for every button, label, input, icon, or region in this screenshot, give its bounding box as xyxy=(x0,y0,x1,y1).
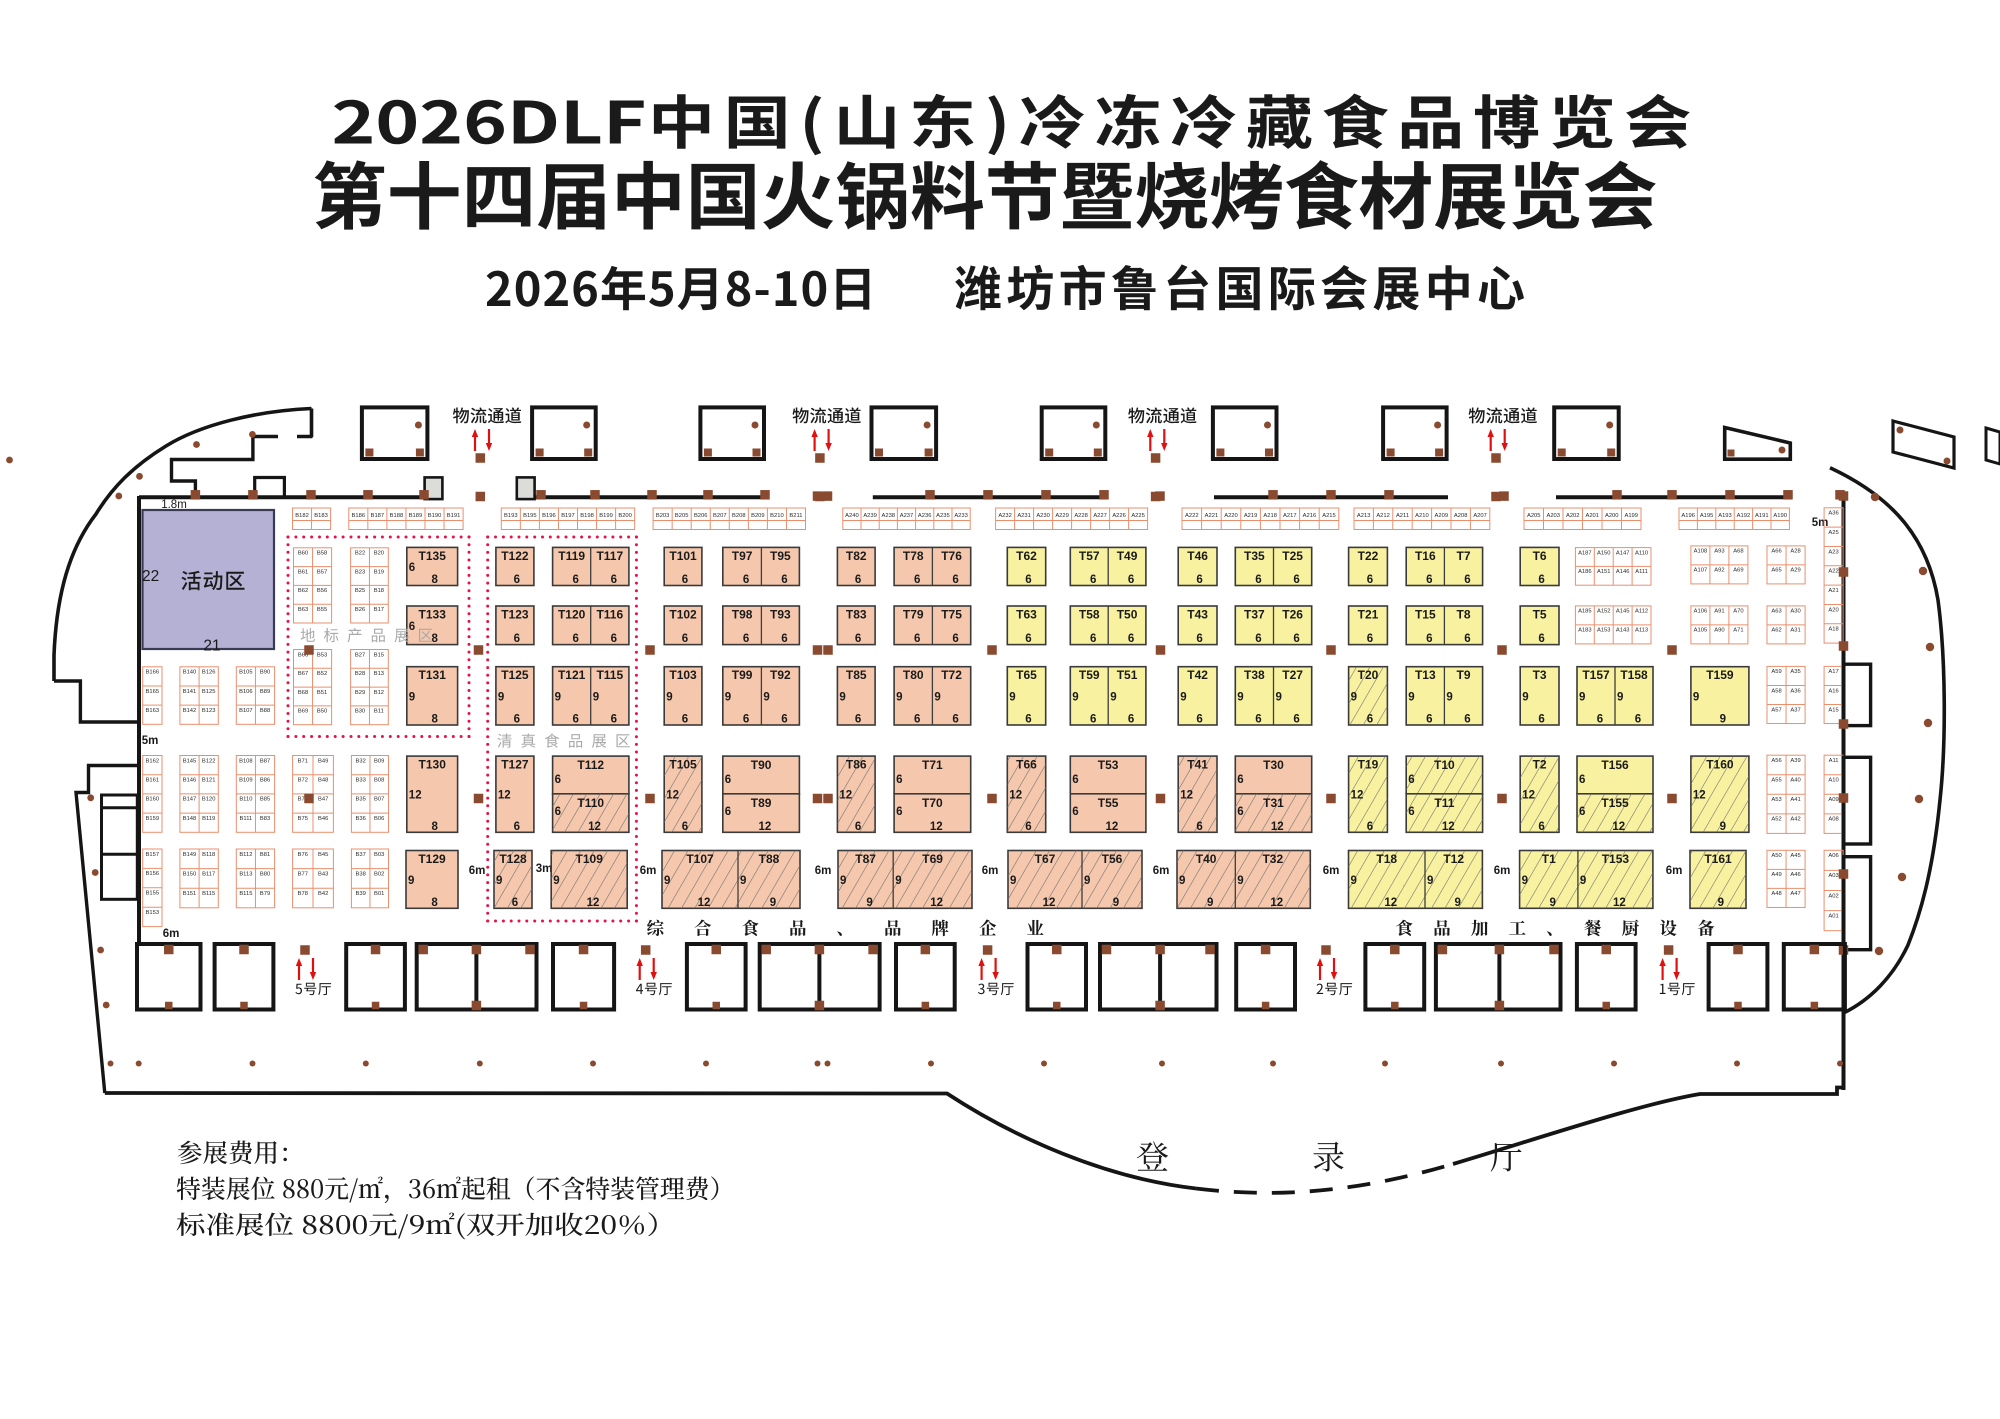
svg-text:A70: A70 xyxy=(1733,609,1743,615)
svg-text:B01: B01 xyxy=(374,891,384,897)
svg-text:6m: 6m xyxy=(1494,865,1511,877)
svg-text:A145: A145 xyxy=(1616,609,1630,615)
svg-text:6: 6 xyxy=(855,714,861,726)
svg-text:A199: A199 xyxy=(1624,513,1638,519)
svg-text:9: 9 xyxy=(740,875,746,887)
svg-text:T10: T10 xyxy=(1434,758,1455,772)
svg-text:T153: T153 xyxy=(1602,852,1630,866)
svg-text:T99: T99 xyxy=(732,668,753,682)
svg-text:B77: B77 xyxy=(298,871,308,877)
svg-text:6: 6 xyxy=(725,774,731,786)
svg-text:A201: A201 xyxy=(1585,513,1599,519)
svg-text:A227: A227 xyxy=(1093,513,1107,519)
svg-text:6: 6 xyxy=(1072,806,1078,818)
svg-text:B35: B35 xyxy=(356,797,366,803)
svg-text:A25: A25 xyxy=(1828,530,1838,536)
svg-text:A233: A233 xyxy=(954,513,968,519)
svg-text:A02: A02 xyxy=(1828,893,1838,899)
svg-text:B03: B03 xyxy=(374,852,384,858)
svg-text:B149: B149 xyxy=(183,852,197,858)
svg-text:6: 6 xyxy=(896,774,902,786)
svg-text:B153: B153 xyxy=(146,910,160,916)
svg-text:12: 12 xyxy=(1613,897,1626,909)
svg-text:9: 9 xyxy=(408,875,414,887)
svg-text:T97: T97 xyxy=(732,549,753,563)
svg-text:B211: B211 xyxy=(789,513,802,519)
svg-text:B07: B07 xyxy=(374,797,384,803)
svg-text:9: 9 xyxy=(1237,691,1243,703)
svg-text:A65: A65 xyxy=(1771,568,1781,574)
svg-text:A232: A232 xyxy=(998,513,1012,519)
svg-text:A59: A59 xyxy=(1771,669,1781,675)
svg-text:T135: T135 xyxy=(419,549,447,563)
svg-text:A93: A93 xyxy=(1714,549,1724,555)
svg-text:B76: B76 xyxy=(298,852,308,858)
svg-text:A205: A205 xyxy=(1527,513,1541,519)
svg-text:9: 9 xyxy=(895,875,901,887)
svg-text:T76: T76 xyxy=(941,549,962,563)
svg-text:6m: 6m xyxy=(815,865,832,877)
svg-text:T37: T37 xyxy=(1244,608,1265,622)
svg-text:T161: T161 xyxy=(1704,852,1732,866)
svg-text:A210: A210 xyxy=(1415,513,1429,519)
svg-text:12: 12 xyxy=(1043,897,1056,909)
svg-text:B20: B20 xyxy=(374,551,384,557)
svg-text:T127: T127 xyxy=(501,758,529,772)
svg-text:B42: B42 xyxy=(318,891,328,897)
svg-text:B189: B189 xyxy=(409,513,423,519)
svg-text:B166: B166 xyxy=(146,670,160,676)
svg-text:A228: A228 xyxy=(1074,513,1088,519)
svg-text:A146: A146 xyxy=(1616,569,1630,575)
svg-text:3m: 3m xyxy=(536,863,553,875)
svg-text:T87: T87 xyxy=(855,852,876,866)
svg-text:A46: A46 xyxy=(1790,872,1800,878)
svg-text:B118: B118 xyxy=(202,852,215,858)
svg-text:T110: T110 xyxy=(577,796,604,810)
svg-text:T40: T40 xyxy=(1196,852,1217,866)
svg-text:6: 6 xyxy=(1597,714,1603,726)
svg-text:A187: A187 xyxy=(1578,550,1592,556)
svg-text:8: 8 xyxy=(432,821,439,833)
svg-text:9: 9 xyxy=(666,691,672,703)
svg-text:T26: T26 xyxy=(1282,608,1303,622)
svg-text:B39: B39 xyxy=(356,891,366,897)
svg-text:B111: B111 xyxy=(240,816,253,822)
svg-text:B196: B196 xyxy=(542,513,556,519)
svg-text:A57: A57 xyxy=(1771,707,1781,713)
svg-text:6: 6 xyxy=(1293,714,1299,726)
svg-text:A35: A35 xyxy=(1790,669,1800,675)
svg-text:6: 6 xyxy=(1128,574,1134,586)
svg-text:6: 6 xyxy=(409,621,415,633)
svg-text:T35: T35 xyxy=(1244,549,1265,563)
svg-text:6: 6 xyxy=(1090,633,1096,645)
svg-text:B30: B30 xyxy=(355,709,365,715)
svg-text:9: 9 xyxy=(763,691,769,703)
svg-text:B62: B62 xyxy=(298,588,308,594)
svg-text:T15: T15 xyxy=(1415,608,1436,622)
svg-text:B109: B109 xyxy=(239,778,253,784)
svg-text:A240: A240 xyxy=(845,513,859,519)
svg-text:T95: T95 xyxy=(770,549,791,563)
svg-text:B08: B08 xyxy=(374,778,384,784)
svg-text:T156: T156 xyxy=(1601,758,1629,772)
svg-text:6: 6 xyxy=(409,562,415,574)
svg-text:B140: B140 xyxy=(183,670,197,676)
svg-text:T30: T30 xyxy=(1263,758,1284,772)
svg-text:T79: T79 xyxy=(903,608,924,622)
svg-text:6: 6 xyxy=(952,574,958,586)
svg-text:9: 9 xyxy=(1427,875,1433,887)
svg-text:A220: A220 xyxy=(1224,513,1238,519)
svg-text:B142: B142 xyxy=(183,708,197,714)
svg-text:6: 6 xyxy=(1426,633,1432,645)
svg-text:9: 9 xyxy=(1580,875,1586,887)
svg-text:T105: T105 xyxy=(669,758,697,772)
svg-text:B25: B25 xyxy=(355,588,365,594)
svg-text:A239: A239 xyxy=(863,513,877,519)
svg-text:6: 6 xyxy=(1408,774,1414,786)
svg-text:B186: B186 xyxy=(352,513,366,519)
svg-text:9: 9 xyxy=(839,691,845,703)
svg-text:6m: 6m xyxy=(1153,865,1170,877)
svg-text:6: 6 xyxy=(1128,633,1134,645)
svg-text:B193: B193 xyxy=(504,513,518,519)
svg-text:B75: B75 xyxy=(298,816,308,822)
svg-text:6: 6 xyxy=(1090,714,1096,726)
svg-text:6: 6 xyxy=(1196,714,1202,726)
svg-text:B117: B117 xyxy=(202,871,215,877)
svg-text:A20: A20 xyxy=(1828,607,1838,613)
svg-text:T27: T27 xyxy=(1282,668,1303,682)
svg-text:12: 12 xyxy=(1271,821,1284,833)
svg-text:B63: B63 xyxy=(298,607,308,613)
svg-text:8: 8 xyxy=(432,574,439,586)
svg-text:6: 6 xyxy=(1538,821,1544,833)
svg-text:B11: B11 xyxy=(374,709,384,715)
svg-text:B15: B15 xyxy=(374,652,384,658)
svg-text:T22: T22 xyxy=(1358,549,1379,563)
svg-text:T65: T65 xyxy=(1016,668,1037,682)
svg-text:B107: B107 xyxy=(239,708,253,714)
svg-text:9: 9 xyxy=(1084,875,1090,887)
svg-text:B53: B53 xyxy=(317,652,327,658)
svg-text:B78: B78 xyxy=(298,891,308,897)
svg-text:9: 9 xyxy=(1718,897,1724,909)
svg-text:12: 12 xyxy=(1009,790,1022,802)
svg-text:B23: B23 xyxy=(355,569,365,575)
svg-text:9: 9 xyxy=(1408,691,1414,703)
svg-text:T12: T12 xyxy=(1443,852,1464,866)
svg-text:T20: T20 xyxy=(1358,668,1379,682)
svg-text:1.8m: 1.8m xyxy=(161,499,187,511)
svg-text:6: 6 xyxy=(914,714,920,726)
svg-text:B68: B68 xyxy=(298,690,308,696)
svg-text:B06: B06 xyxy=(374,816,384,822)
svg-text:9: 9 xyxy=(593,691,599,703)
svg-text:B147: B147 xyxy=(183,797,197,803)
svg-text:B113: B113 xyxy=(239,871,252,877)
svg-text:A221: A221 xyxy=(1205,513,1219,519)
svg-text:B119: B119 xyxy=(202,816,215,822)
svg-text:6: 6 xyxy=(514,714,520,726)
svg-text:B157: B157 xyxy=(146,852,160,858)
svg-text:A235: A235 xyxy=(936,513,950,519)
svg-text:A71: A71 xyxy=(1733,628,1743,634)
svg-text:T1: T1 xyxy=(1542,852,1556,866)
svg-text:6: 6 xyxy=(572,633,578,645)
svg-text:9: 9 xyxy=(498,691,504,703)
svg-text:6: 6 xyxy=(781,574,787,586)
svg-text:12: 12 xyxy=(1351,790,1364,802)
svg-text:T31: T31 xyxy=(1263,796,1284,810)
svg-text:B36: B36 xyxy=(356,816,366,822)
svg-text:A69: A69 xyxy=(1733,568,1743,574)
svg-text:9: 9 xyxy=(1720,714,1726,726)
svg-text:T69: T69 xyxy=(922,852,943,866)
svg-text:A56: A56 xyxy=(1771,758,1781,764)
svg-text:B50: B50 xyxy=(317,709,327,715)
svg-text:T129: T129 xyxy=(418,852,446,866)
svg-text:A190: A190 xyxy=(1773,513,1787,519)
svg-text:A113: A113 xyxy=(1635,628,1648,634)
svg-text:9: 9 xyxy=(1617,691,1623,703)
svg-text:B52: B52 xyxy=(317,671,327,677)
svg-text:B165: B165 xyxy=(146,689,160,695)
svg-text:9: 9 xyxy=(409,691,415,703)
svg-text:T41: T41 xyxy=(1187,758,1208,772)
svg-text:T78: T78 xyxy=(903,549,924,563)
svg-text:T3: T3 xyxy=(1533,668,1547,682)
svg-text:A18: A18 xyxy=(1828,627,1838,633)
svg-text:6: 6 xyxy=(1090,574,1096,586)
svg-text:T121: T121 xyxy=(558,668,586,682)
svg-text:12: 12 xyxy=(930,821,943,833)
svg-text:6: 6 xyxy=(1635,714,1641,726)
svg-text:B61: B61 xyxy=(298,569,308,575)
svg-text:B162: B162 xyxy=(146,758,160,764)
svg-text:B110: B110 xyxy=(239,797,252,803)
svg-text:A36: A36 xyxy=(1790,688,1800,694)
svg-text:T86: T86 xyxy=(846,758,867,772)
svg-text:A183: A183 xyxy=(1578,628,1592,634)
svg-text:B45: B45 xyxy=(318,852,328,858)
svg-text:B29: B29 xyxy=(355,690,365,696)
svg-text:9: 9 xyxy=(555,691,561,703)
svg-text:12: 12 xyxy=(1442,821,1455,833)
svg-text:6: 6 xyxy=(781,714,787,726)
svg-text:T19: T19 xyxy=(1358,758,1379,772)
svg-text:6: 6 xyxy=(952,714,958,726)
svg-text:6: 6 xyxy=(1579,774,1585,786)
svg-text:B198: B198 xyxy=(580,513,594,519)
svg-text:T155: T155 xyxy=(1601,796,1629,810)
svg-text:T109: T109 xyxy=(576,852,604,866)
svg-text:A143: A143 xyxy=(1616,628,1630,634)
svg-text:B80: B80 xyxy=(260,871,270,877)
svg-text:A185: A185 xyxy=(1578,609,1592,615)
svg-text:B209: B209 xyxy=(751,513,765,519)
svg-text:T7: T7 xyxy=(1456,549,1470,563)
svg-text:B57: B57 xyxy=(317,569,327,575)
svg-text:9: 9 xyxy=(1009,691,1015,703)
svg-text:9: 9 xyxy=(896,691,902,703)
svg-text:6: 6 xyxy=(743,633,749,645)
svg-text:T38: T38 xyxy=(1244,668,1265,682)
svg-text:B67: B67 xyxy=(298,671,308,677)
svg-text:T13: T13 xyxy=(1415,668,1436,682)
svg-text:8: 8 xyxy=(432,633,439,645)
svg-text:B188: B188 xyxy=(390,513,404,519)
svg-text:9: 9 xyxy=(1237,875,1243,887)
svg-text:T115: T115 xyxy=(596,668,623,682)
svg-text:B150: B150 xyxy=(183,871,197,877)
svg-text:B199: B199 xyxy=(599,513,613,519)
svg-text:T57: T57 xyxy=(1079,549,1100,563)
svg-text:A39: A39 xyxy=(1790,758,1800,764)
svg-text:T130: T130 xyxy=(419,758,447,772)
svg-text:T157: T157 xyxy=(1582,668,1610,682)
svg-text:6: 6 xyxy=(555,806,561,818)
svg-text:6: 6 xyxy=(1367,633,1373,645)
svg-text:T98: T98 xyxy=(732,608,753,622)
svg-text:A147: A147 xyxy=(1616,550,1630,556)
svg-text:T159: T159 xyxy=(1706,668,1734,682)
svg-text:T42: T42 xyxy=(1187,668,1208,682)
svg-text:6: 6 xyxy=(1196,821,1202,833)
svg-text:A230: A230 xyxy=(1036,513,1050,519)
svg-text:9: 9 xyxy=(1693,691,1699,703)
svg-text:6: 6 xyxy=(1237,774,1243,786)
svg-text:A225: A225 xyxy=(1131,513,1145,519)
svg-text:B18: B18 xyxy=(374,588,384,594)
svg-text:B90: B90 xyxy=(260,670,270,676)
svg-text:9: 9 xyxy=(934,691,940,703)
svg-text:6: 6 xyxy=(855,574,861,586)
svg-text:6: 6 xyxy=(1196,633,1202,645)
svg-text:6: 6 xyxy=(555,774,561,786)
svg-text:6: 6 xyxy=(1293,574,1299,586)
svg-text:9: 9 xyxy=(1072,691,1078,703)
svg-text:12: 12 xyxy=(930,897,943,909)
svg-text:6: 6 xyxy=(1367,714,1373,726)
svg-text:6: 6 xyxy=(1255,633,1261,645)
svg-text:5m: 5m xyxy=(142,735,159,747)
svg-text:T102: T102 xyxy=(669,608,697,622)
svg-text:B105: B105 xyxy=(239,670,253,676)
svg-text:A55: A55 xyxy=(1771,778,1781,784)
svg-text:B88: B88 xyxy=(260,708,270,714)
svg-text:6m: 6m xyxy=(1323,865,1340,877)
svg-text:6: 6 xyxy=(682,821,688,833)
svg-text:B69: B69 xyxy=(298,709,308,715)
svg-text:6: 6 xyxy=(611,714,617,726)
svg-text:6: 6 xyxy=(1367,821,1373,833)
svg-text:A06: A06 xyxy=(1828,853,1838,859)
svg-text:6: 6 xyxy=(1464,574,1470,586)
svg-text:6: 6 xyxy=(1426,574,1432,586)
svg-text:12: 12 xyxy=(666,790,679,802)
svg-text:A191: A191 xyxy=(1755,513,1769,519)
svg-text:9: 9 xyxy=(1454,897,1460,909)
svg-text:9: 9 xyxy=(496,875,502,887)
svg-text:A17: A17 xyxy=(1828,669,1838,675)
svg-text:A215: A215 xyxy=(1322,513,1336,519)
svg-text:A28: A28 xyxy=(1790,549,1800,555)
svg-text:A195: A195 xyxy=(1700,513,1714,519)
svg-text:A52: A52 xyxy=(1771,817,1781,823)
svg-text:A216: A216 xyxy=(1303,513,1317,519)
svg-text:B151: B151 xyxy=(183,891,197,897)
svg-text:9: 9 xyxy=(1179,875,1185,887)
svg-text:A40: A40 xyxy=(1790,778,1800,784)
svg-text:T6: T6 xyxy=(1533,549,1547,563)
svg-text:9: 9 xyxy=(1522,875,1528,887)
svg-text:B200: B200 xyxy=(618,513,632,519)
svg-text:B115: B115 xyxy=(239,891,252,897)
svg-text:T51: T51 xyxy=(1117,668,1138,682)
svg-text:9: 9 xyxy=(1110,691,1116,703)
svg-text:6m: 6m xyxy=(982,865,999,877)
svg-text:6: 6 xyxy=(725,806,731,818)
svg-text:6m: 6m xyxy=(163,928,180,940)
svg-text:6: 6 xyxy=(1025,633,1031,645)
svg-text:B17: B17 xyxy=(374,607,384,613)
svg-text:6m: 6m xyxy=(469,865,486,877)
svg-text:9: 9 xyxy=(770,897,776,909)
svg-text:B09: B09 xyxy=(374,758,384,764)
svg-text:T119: T119 xyxy=(558,549,585,563)
svg-text:A226: A226 xyxy=(1112,513,1126,519)
svg-text:T131: T131 xyxy=(419,668,447,682)
svg-text:A153: A153 xyxy=(1597,628,1611,634)
svg-text:B190: B190 xyxy=(428,513,442,519)
svg-text:6: 6 xyxy=(611,633,617,645)
svg-text:A53: A53 xyxy=(1771,797,1781,803)
svg-text:A45: A45 xyxy=(1790,853,1800,859)
svg-text:B106: B106 xyxy=(239,689,253,695)
svg-text:A202: A202 xyxy=(1566,513,1580,519)
svg-text:T21: T21 xyxy=(1358,608,1379,622)
svg-text:6: 6 xyxy=(682,633,688,645)
svg-text:A108: A108 xyxy=(1694,549,1708,555)
svg-text:T58: T58 xyxy=(1079,608,1100,622)
svg-text:B108: B108 xyxy=(239,758,253,764)
svg-text:B121: B121 xyxy=(202,778,216,784)
svg-text:A192: A192 xyxy=(1737,513,1751,519)
svg-text:T80: T80 xyxy=(903,668,924,682)
svg-text:6: 6 xyxy=(1408,806,1414,818)
svg-text:12: 12 xyxy=(698,897,711,909)
svg-text:A15: A15 xyxy=(1828,707,1838,713)
svg-text:B86: B86 xyxy=(260,778,270,784)
svg-text:T18: T18 xyxy=(1376,852,1397,866)
svg-text:A212: A212 xyxy=(1376,513,1390,519)
svg-text:6: 6 xyxy=(743,574,749,586)
svg-text:B19: B19 xyxy=(374,569,384,575)
svg-text:12: 12 xyxy=(839,790,852,802)
svg-text:A11: A11 xyxy=(1829,758,1839,764)
svg-text:A68: A68 xyxy=(1733,549,1743,555)
svg-text:A16: A16 xyxy=(1828,688,1838,694)
svg-text:T56: T56 xyxy=(1102,852,1123,866)
svg-text:A203: A203 xyxy=(1546,513,1560,519)
svg-text:A207: A207 xyxy=(1473,513,1487,519)
svg-text:T46: T46 xyxy=(1187,549,1208,563)
svg-text:B203: B203 xyxy=(656,513,670,519)
svg-text:A49: A49 xyxy=(1771,872,1781,878)
